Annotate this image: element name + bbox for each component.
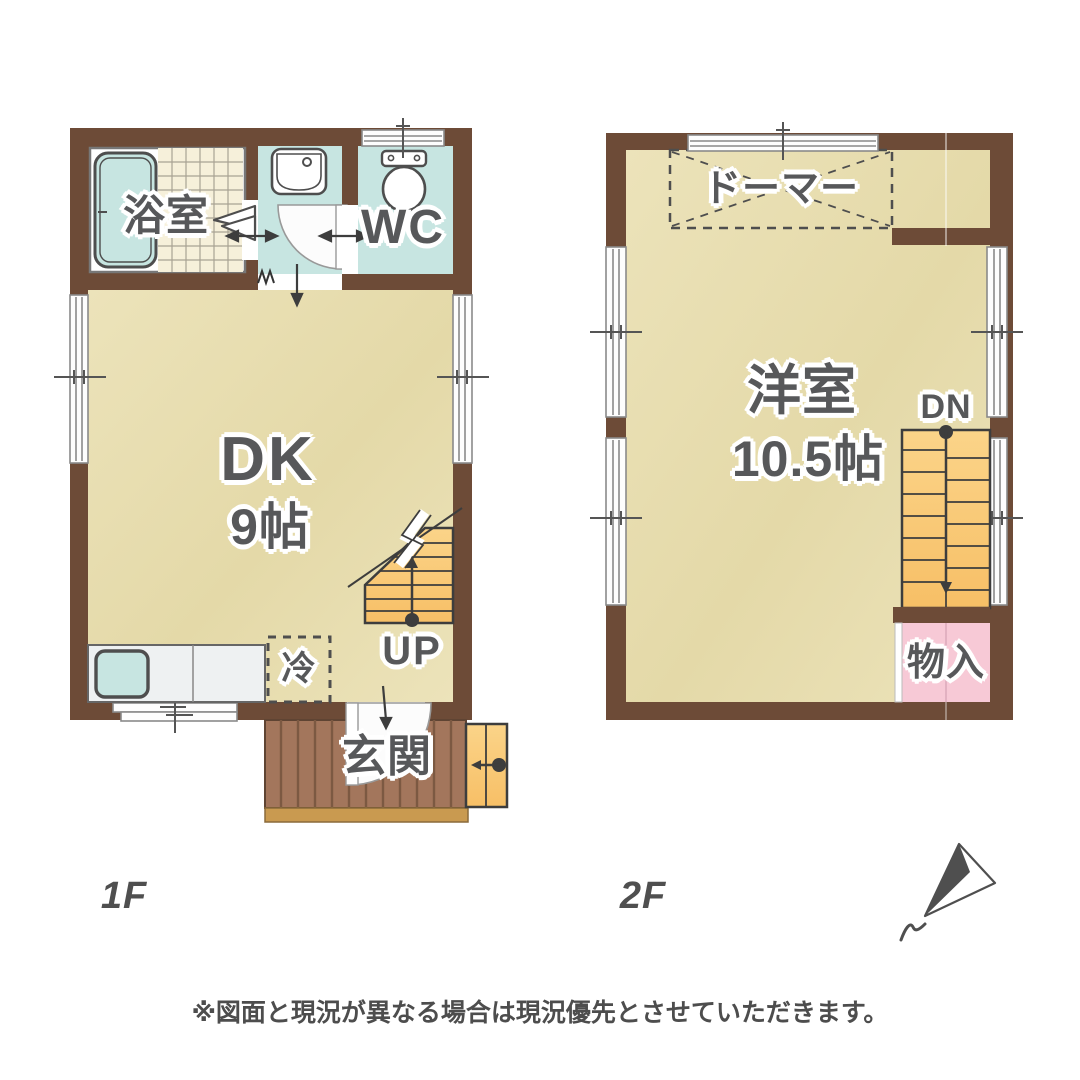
north-arrow-icon [901,844,995,940]
storage-door-gap [895,623,902,702]
f2-stairs-down [902,425,990,608]
room2-label: 洋室 [747,364,857,418]
floor2-tag: 2F [620,877,666,915]
disclaimer-text: ※図面と現況が異なる場合は現況優先とさせていただきます。 [192,993,889,1029]
dk-label: DK [220,429,316,491]
stairs-up-label: UP [382,631,442,671]
washbasin [272,149,326,194]
washroom-dk-opening [258,274,342,290]
room2-size-label: 10.5帖 [732,434,884,484]
wc-label: WC [361,204,445,252]
outside-steps [466,724,507,807]
dk-left-window [70,295,88,463]
room2-left-window-2 [606,438,626,605]
entrance-label: 玄関 [342,735,432,779]
nook-wall [892,228,990,245]
kitchen-counter [88,645,265,702]
floorplan-drawing [0,0,1080,1080]
wc-door-opening [342,205,358,274]
washroom [258,146,347,274]
floor1-tag: 1F [101,877,147,915]
kitchen-sink [96,651,148,697]
stairs-down-label: DN [920,390,971,424]
dormer-label: ドーマー [703,170,859,208]
dk-size-label: 9帖 [230,502,310,552]
storage-label: 物入 [907,644,985,682]
entrance-step [265,808,468,822]
stair-bottom-wall [893,607,990,623]
dk-right-window [453,295,472,463]
fridge-label: 冷 [282,652,317,686]
bathroom-label: 浴室 [123,195,209,237]
floorplan-page: 浴室 WC DK 9帖 冷 UP 玄関 1F ドーマー 洋室 10.5帖 DN … [0,0,1080,1080]
